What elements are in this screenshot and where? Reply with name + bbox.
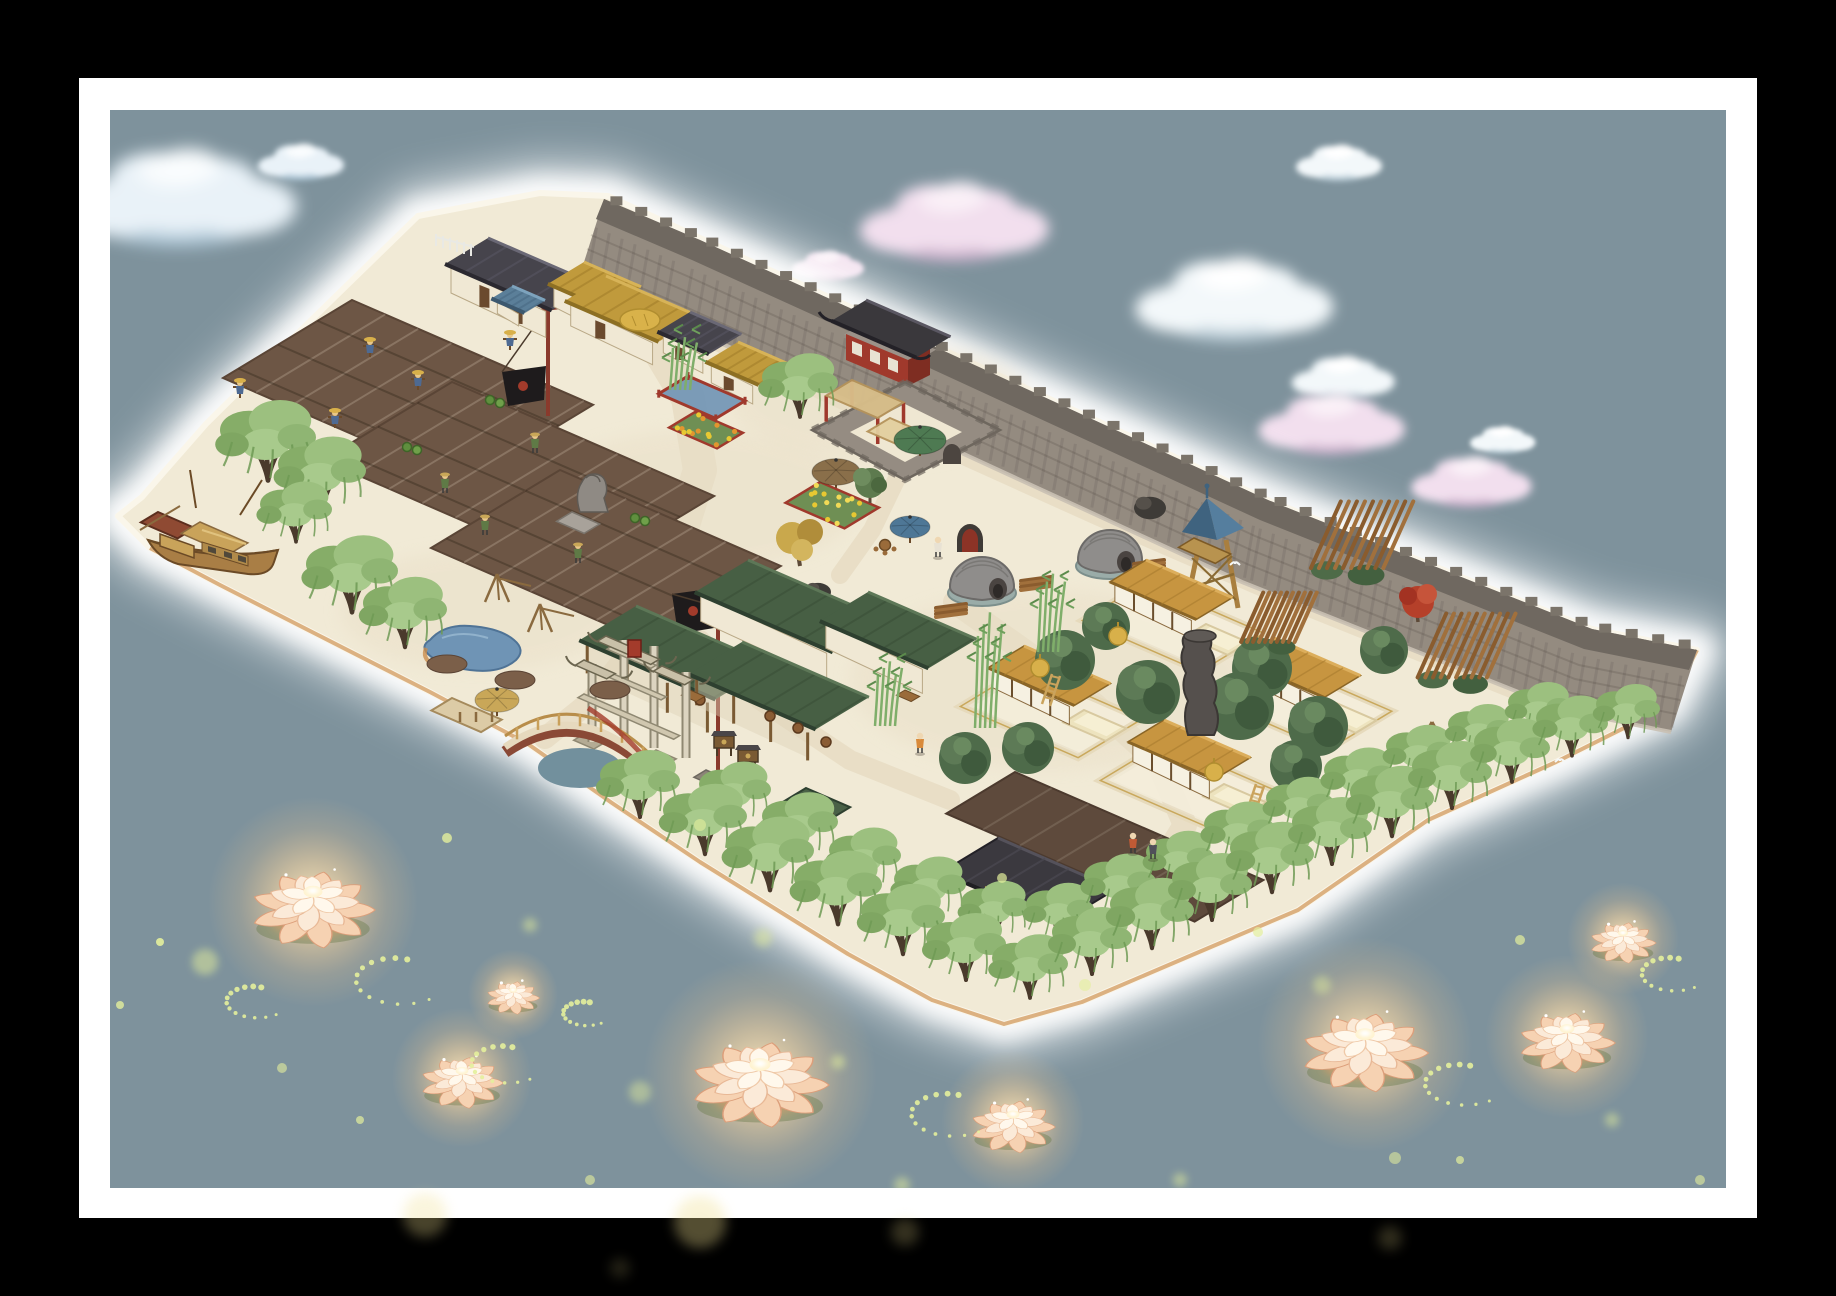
island-map-canvas[interactable] <box>0 0 1836 1296</box>
lantern-glow-bleed <box>891 1218 919 1246</box>
lotus-lantern <box>1257 937 1472 1152</box>
barrel <box>765 711 775 721</box>
firefly <box>1313 976 1331 994</box>
green-tree <box>1360 626 1408 674</box>
firefly <box>694 819 706 831</box>
firefly <box>523 918 537 932</box>
green-tree <box>939 732 991 784</box>
firefly <box>156 938 164 946</box>
game-screenshot <box>0 0 1836 1296</box>
firefly <box>997 873 1007 883</box>
firefly <box>1456 1156 1464 1164</box>
firefly <box>629 1081 651 1103</box>
firefly <box>356 1116 364 1124</box>
firefly <box>277 1063 287 1073</box>
firefly <box>442 833 452 843</box>
firefly <box>1515 935 1525 945</box>
firefly <box>116 1001 124 1009</box>
soil-mound <box>427 655 467 673</box>
dark-rock <box>1134 497 1166 519</box>
firefly <box>1079 979 1091 991</box>
log-pile <box>936 604 966 617</box>
lantern-glow-bleed <box>403 1193 447 1237</box>
firefly <box>1389 1152 1401 1164</box>
firefly <box>831 1055 845 1069</box>
lotus-lantern <box>392 1007 532 1147</box>
firefly <box>192 949 218 975</box>
firefly <box>1605 1113 1619 1127</box>
firefly <box>1695 1175 1705 1185</box>
lotus-lantern <box>643 959 877 1193</box>
lotus-lantern <box>208 797 419 1008</box>
soil-mound <box>495 671 535 689</box>
green-tree <box>1002 722 1054 774</box>
green-tree <box>1116 660 1180 724</box>
lantern-glow-bleed <box>610 1258 630 1278</box>
firefly <box>1253 927 1263 937</box>
firefly <box>585 1175 595 1185</box>
soil-mound <box>590 681 630 699</box>
barrel <box>793 723 803 733</box>
lantern-glow-bleed <box>1378 1226 1402 1250</box>
firefly <box>754 929 772 947</box>
lotus-lantern <box>941 1050 1085 1194</box>
barrel <box>821 737 831 747</box>
firefly <box>1173 1173 1187 1187</box>
lantern-glow-bleed <box>674 1196 726 1248</box>
lotus-lantern <box>1567 883 1679 995</box>
